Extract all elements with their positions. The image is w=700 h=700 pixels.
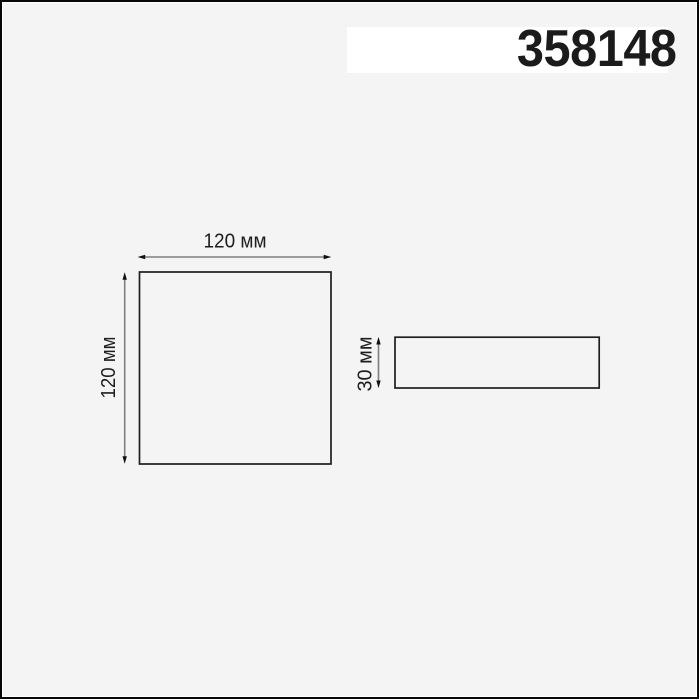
svg-text:30 мм: 30 мм (355, 337, 377, 392)
svg-text:120 мм: 120 мм (204, 231, 267, 253)
svg-text:120 мм: 120 мм (98, 337, 120, 399)
